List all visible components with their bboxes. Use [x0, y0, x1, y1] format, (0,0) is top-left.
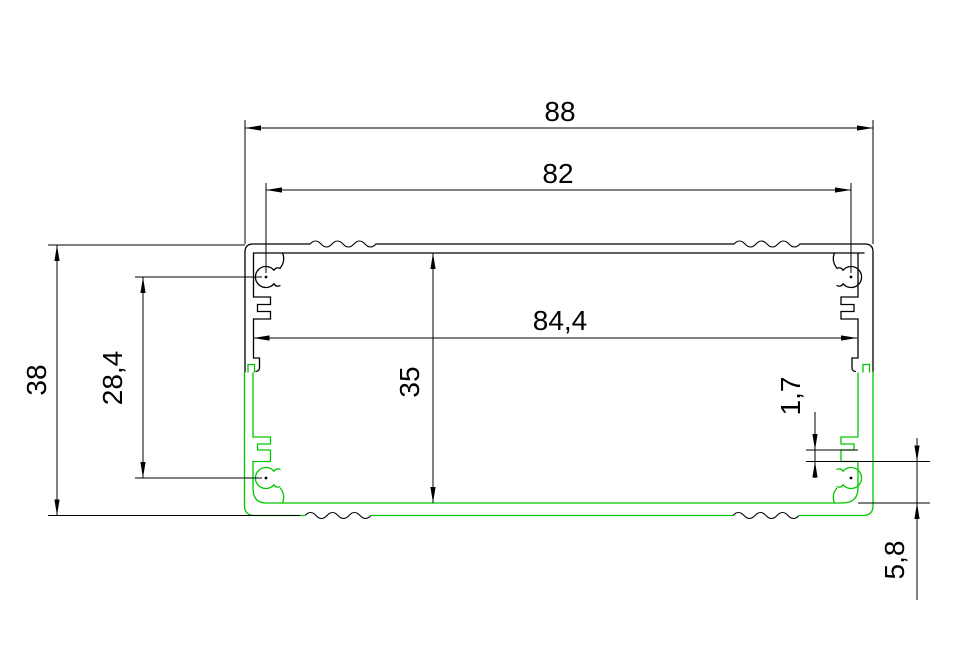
dimension-slot-ledge-thickness: 1,7: [775, 377, 930, 478]
dim-label-1-7: 1,7: [775, 377, 806, 416]
top-right-squiggle: [734, 241, 800, 247]
top-left-squiggle: [310, 241, 376, 247]
lower-left-screw-boss: [255, 468, 283, 504]
dim-label-88: 88: [544, 96, 575, 127]
lower-right-screw-boss: [833, 468, 861, 504]
center-mark: [850, 477, 853, 480]
lower-inner-bottom-line: [253, 488, 858, 503]
upper-left-screw-boss: [255, 253, 283, 288]
dim-label-5-8: 5,8: [879, 541, 910, 580]
upper-right-screw-boss: [833, 253, 861, 288]
center-mark: [850, 276, 853, 279]
upper-right-inner-wall: [841, 253, 858, 372]
center-mark: [265, 276, 268, 279]
dimension-overall-height: 38: [21, 245, 300, 516]
dimension-boss-center-height: 28,4: [97, 277, 262, 478]
surface-texture-squiggles: [305, 241, 800, 519]
dim-label-38: 38: [21, 364, 52, 395]
dim-label-35: 35: [394, 366, 425, 397]
dimension-interior-height: 35: [394, 253, 436, 503]
bottom-left-squiggle: [305, 513, 371, 519]
enclosure-profile-drawing: 88 82 84,4 38: [0, 0, 959, 667]
dim-label-82: 82: [542, 158, 573, 189]
cad-drawing-canvas: 88 82 84,4 38: [0, 0, 959, 667]
bottom-right-squiggle: [733, 513, 799, 519]
dimension-interior-width: 84,4: [254, 305, 858, 341]
dim-label-84-4: 84,4: [533, 305, 588, 336]
upper-left-inner-wall: [254, 253, 271, 372]
dimension-base-height: 5,8: [858, 438, 930, 600]
center-mark: [265, 477, 268, 480]
dimension-boss-center-width: 82: [266, 158, 851, 273]
dim-label-28-4: 28,4: [97, 351, 128, 406]
